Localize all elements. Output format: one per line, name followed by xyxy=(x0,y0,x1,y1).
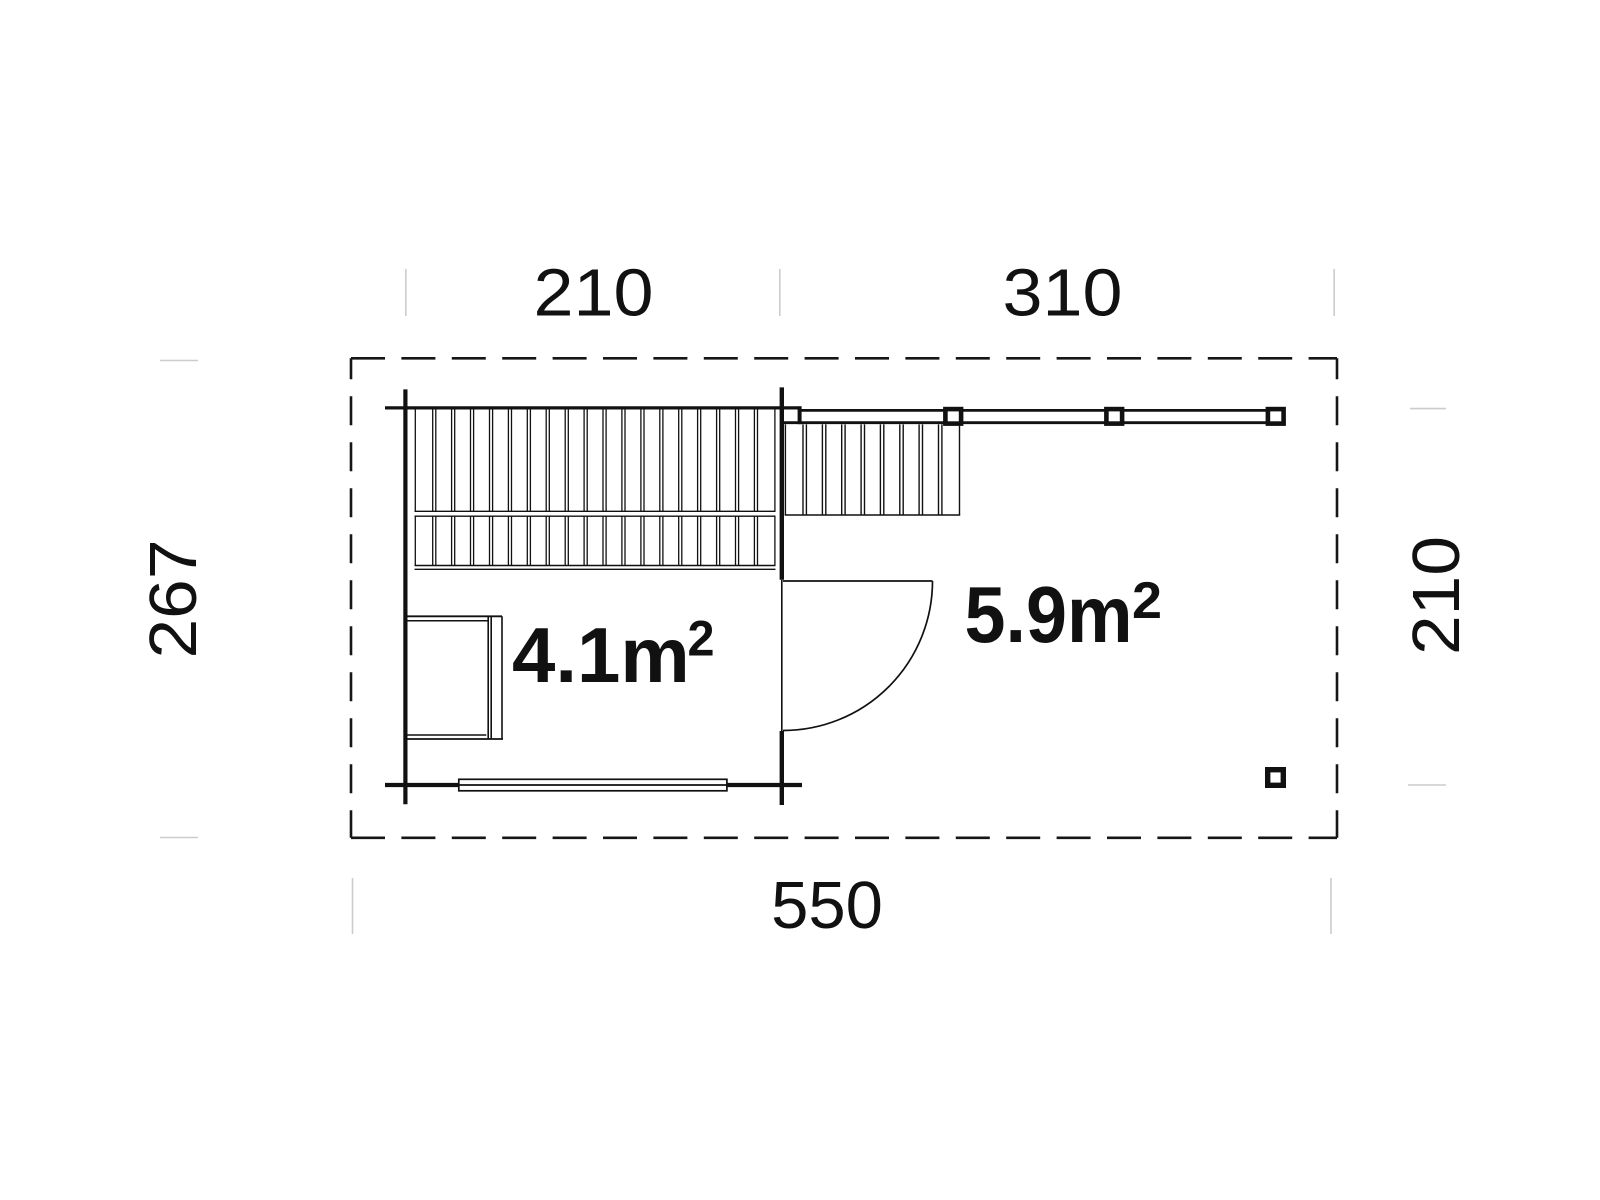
svg-text:5.9m: 5.9m xyxy=(965,570,1133,659)
svg-text:550: 550 xyxy=(771,868,883,943)
svg-text:2: 2 xyxy=(688,611,715,667)
svg-text:310: 310 xyxy=(1003,256,1123,331)
svg-text:267: 267 xyxy=(136,540,211,659)
svg-text:2: 2 xyxy=(1132,572,1162,630)
svg-text:210: 210 xyxy=(534,256,654,331)
svg-text:4.1m: 4.1m xyxy=(512,611,690,699)
svg-text:210: 210 xyxy=(1399,536,1474,655)
